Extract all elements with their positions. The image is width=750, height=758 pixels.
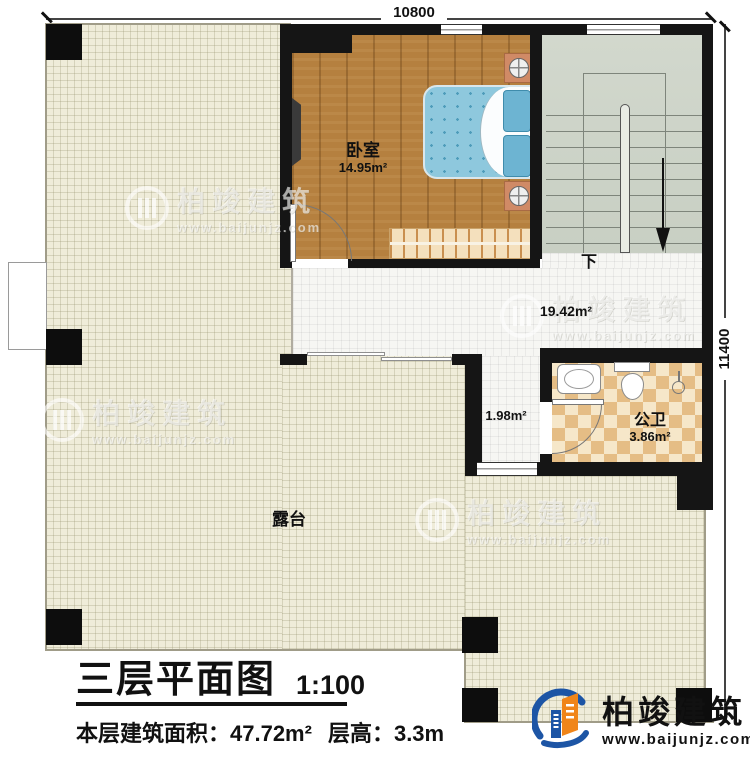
terrace-label: 露台 <box>249 510 329 530</box>
bathroom-label: 公卫 3.86m² <box>605 412 695 445</box>
wall <box>282 24 352 53</box>
wall <box>348 259 540 268</box>
toilet-tank <box>614 362 650 372</box>
bedroom-door-leaf <box>290 204 296 262</box>
floor-height-text: 层高：3.3m <box>328 716 444 748</box>
ac-platform <box>8 262 47 350</box>
wall <box>702 24 713 510</box>
column <box>462 688 498 722</box>
sliding-door-panel <box>307 352 385 356</box>
wall <box>530 24 542 259</box>
brand-name: 柏竣建筑 <box>602 696 750 728</box>
hall-floor <box>542 253 702 268</box>
title-underline <box>76 702 347 706</box>
bedroom-label: 卧室 14.95m² <box>303 141 423 175</box>
wall <box>280 354 307 365</box>
bedroom-area: 14.95m² <box>303 161 423 176</box>
nightstand-lamp <box>509 186 529 206</box>
column <box>46 24 82 60</box>
brand-logo: 柏竣建筑 www.baijunjz.com <box>532 686 750 757</box>
pillow <box>503 135 531 177</box>
hall-floor <box>293 268 702 356</box>
dim-top-label: 10800 <box>381 4 447 22</box>
column <box>462 617 498 653</box>
floor-plan: 10800 11400 <box>0 0 750 758</box>
brand-logo-icon <box>532 686 594 757</box>
tv <box>292 98 301 166</box>
stairs-arrow-head <box>656 228 670 252</box>
wall <box>540 363 552 402</box>
column <box>46 329 82 365</box>
hall-area-label: 19.42m² <box>521 303 611 319</box>
pillow <box>503 90 531 132</box>
bedroom-name: 卧室 <box>303 141 423 161</box>
brand-url: www.baijunjz.com <box>602 731 750 748</box>
stairs-rail <box>620 104 630 253</box>
floor-info: 本层建筑面积：47.72m² 层高：3.3m <box>76 716 444 748</box>
corridor-area-label: 1.98m² <box>476 409 536 424</box>
sink-basin <box>564 369 594 389</box>
stairs-line <box>583 73 666 74</box>
page-title: 三层平面图 <box>76 648 276 703</box>
terrace-floor <box>46 24 291 651</box>
window <box>477 462 537 476</box>
bathroom-area: 3.86m² <box>605 430 695 445</box>
drawing-scale: 1:100 <box>296 670 365 703</box>
terrace-floor <box>282 354 465 651</box>
bathroom-door-leaf <box>552 399 604 405</box>
window <box>587 24 660 35</box>
column <box>46 609 82 645</box>
dim-right-label: 11400 <box>716 318 734 380</box>
stairs-arrow-stem <box>662 158 664 230</box>
terrace-edge <box>46 23 291 25</box>
bathroom-name: 公卫 <box>605 412 695 430</box>
stairs-direction-label: 下 <box>576 254 602 272</box>
nightstand-lamp <box>509 58 529 78</box>
sliding-door-panel <box>381 357 452 361</box>
shower-head <box>672 381 685 394</box>
dim-top-line <box>46 18 712 20</box>
corner-column <box>677 468 713 510</box>
wall <box>540 348 702 363</box>
title-bar: 三层平面图 1:100 <box>76 648 365 703</box>
floor-area-text: 本层建筑面积：47.72m² <box>76 716 312 748</box>
window <box>441 24 482 35</box>
rug <box>389 228 538 259</box>
